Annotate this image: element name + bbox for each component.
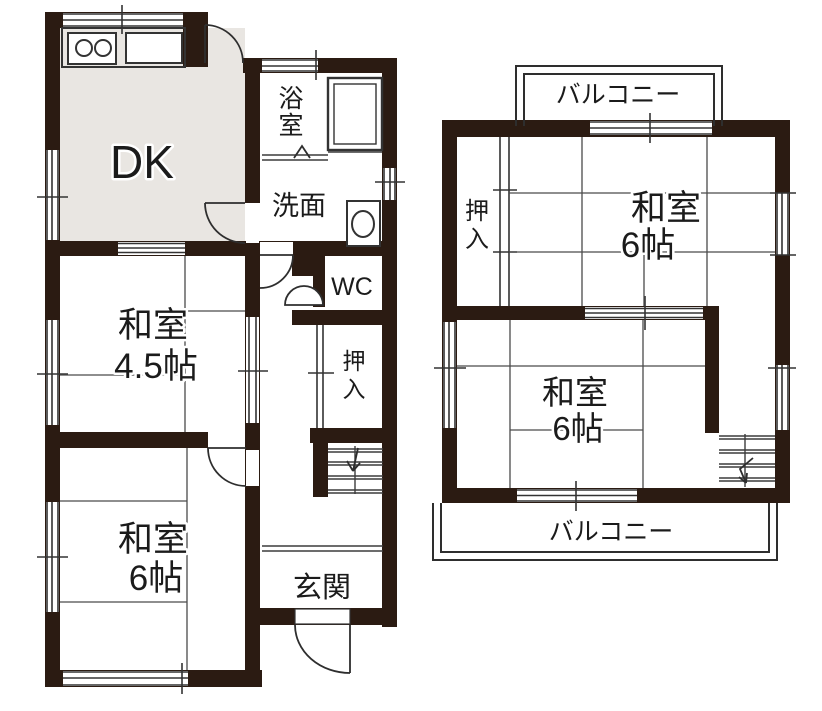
room-label-room-a-2: 6帖 (621, 226, 675, 265)
doorway-dk-washroom (246, 203, 259, 243)
closet-1f-fusuma (308, 325, 334, 428)
room-label-dk: DK (110, 136, 174, 188)
stairs-1f (328, 446, 383, 494)
stove-icon (68, 33, 116, 64)
sink-icon (126, 33, 182, 63)
entrance-step-line (262, 546, 383, 551)
second-floor: バルコニー 押 入 和室 6帖 和室 6帖 バルコニー (433, 66, 796, 560)
room-label-washroom: 洗面 (272, 191, 326, 221)
room-label-room-a-1: 和室 (631, 189, 701, 228)
room-label-room6-1f-2: 6帖 (129, 559, 183, 598)
window-2f-right-lower (768, 365, 796, 430)
closet-2f-fusuma (493, 137, 517, 306)
room-label-closet1f-1: 押 (343, 348, 366, 374)
window-2f-top (590, 113, 712, 143)
bathtub-icon (328, 78, 382, 150)
floor-plan-canvas: DK 浴 室 洗面 WC 押 入 和室 4.5帖 和室 6帖 玄関 (0, 0, 822, 711)
window-left-room6 (37, 502, 68, 612)
washing-machine-icon (347, 201, 380, 246)
room-label-closet2f-1: 押 (465, 198, 489, 225)
window-right-washroom (375, 168, 405, 200)
window-bottom-room6 (63, 663, 188, 694)
doorway-entrance (295, 609, 350, 624)
sliding-door-room45-hall (238, 317, 268, 423)
room-label-room45-2: 4.5帖 (114, 347, 198, 386)
balcony-bottom-label: バルコニー (549, 518, 674, 546)
room-label-closet2f-2: 入 (465, 226, 489, 253)
balcony-top-label: バルコニー (556, 81, 681, 109)
stairs-2f (719, 434, 775, 487)
stairs-down-arrow (739, 458, 753, 483)
room-label-room-b-1: 和室 (542, 374, 608, 411)
window-bath-top (262, 50, 318, 80)
room-label-closet1f-2: 入 (343, 376, 366, 402)
window-2f-bottom (517, 481, 637, 511)
room-label-room-b-2: 6帖 (552, 410, 603, 447)
room-label-room6-1f-1: 和室 (118, 520, 188, 559)
room-label-bath-2: 室 (278, 112, 303, 140)
first-floor: DK 浴 室 洗面 WC 押 入 和室 4.5帖 和室 6帖 玄関 (37, 5, 405, 694)
bath-divider (262, 152, 382, 160)
bath-folding-door-icon (294, 146, 310, 158)
doorway-hall-room6 (246, 450, 259, 486)
door-hall-room6 (208, 448, 246, 486)
doorway-washroom-hall (260, 242, 293, 256)
window-left-room45 (37, 320, 68, 425)
window-2f-left (434, 322, 466, 428)
room-label-bath-1: 浴 (278, 85, 303, 113)
room-label-room45-1: 和室 (118, 306, 188, 345)
window-2f-right-upper (770, 193, 796, 255)
floor-plan-page: DK 浴 室 洗面 WC 押 入 和室 4.5帖 和室 6帖 玄関 (0, 0, 822, 711)
sliding-door-dk-room45 (118, 242, 185, 255)
room-label-entrance: 玄関 (293, 571, 351, 604)
room-label-wc: WC (331, 273, 373, 301)
door-entrance (295, 625, 350, 673)
door-washroom-hall (260, 255, 293, 288)
